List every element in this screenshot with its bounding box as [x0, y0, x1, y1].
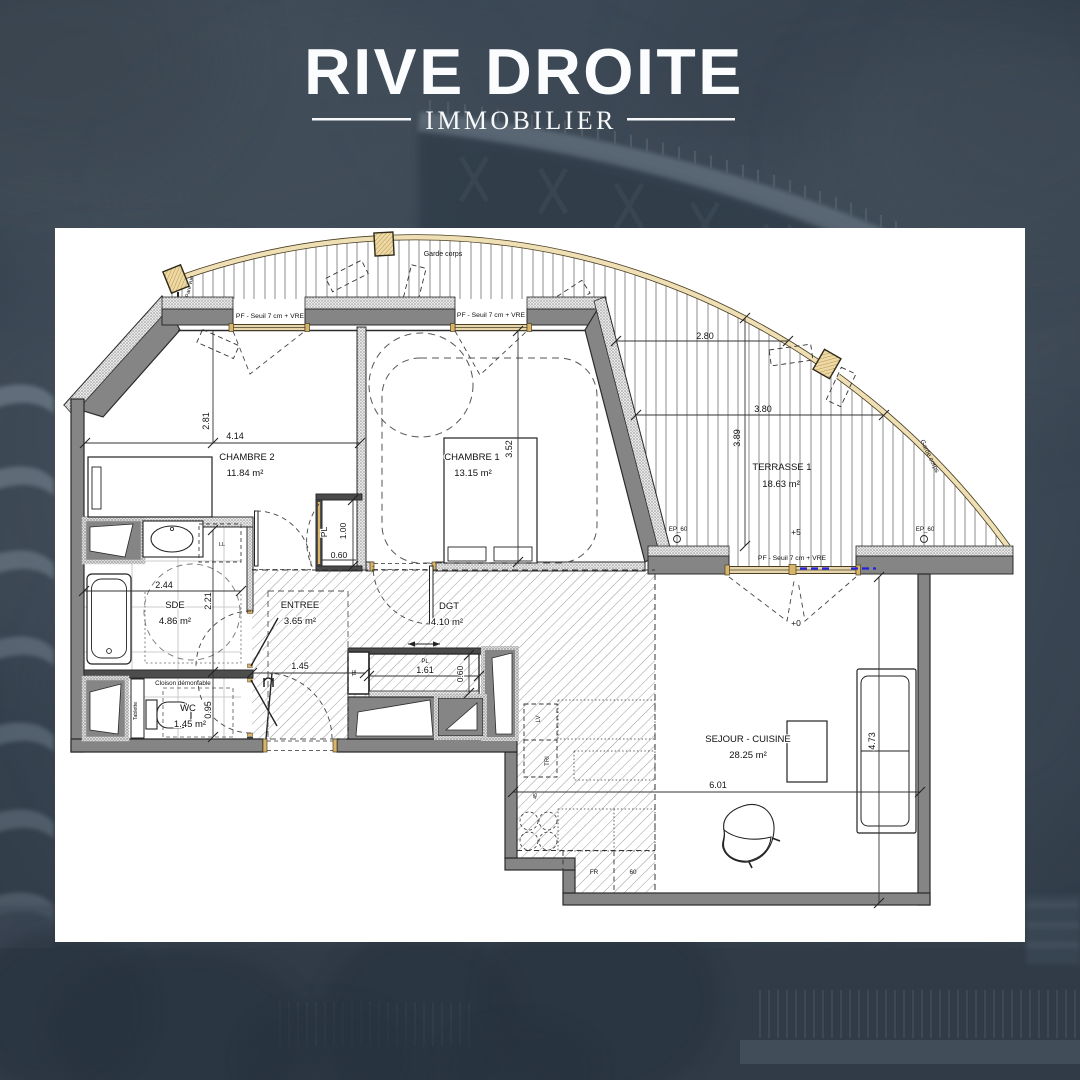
- svg-text:Cloison démontable: Cloison démontable: [155, 680, 211, 687]
- svg-text:TE: TE: [352, 669, 358, 676]
- svg-text:0.60: 0.60: [455, 665, 465, 682]
- svg-text:1.45 m²: 1.45 m²: [174, 719, 206, 730]
- svg-text:PL: PL: [319, 527, 329, 538]
- svg-text:45: 45: [533, 793, 539, 799]
- svg-text:FR: FR: [590, 869, 599, 876]
- svg-text:EP_60: EP_60: [916, 526, 935, 533]
- svg-text:WC: WC: [180, 703, 196, 714]
- svg-text:1.61: 1.61: [416, 665, 434, 675]
- svg-text:4.86 m²: 4.86 m²: [159, 616, 191, 627]
- svg-text:0.95: 0.95: [203, 701, 213, 719]
- svg-text:TRI: TRI: [545, 756, 551, 766]
- svg-text:PF - Seuil 7 cm + VRE: PF - Seuil 7 cm + VRE: [457, 312, 526, 319]
- svg-text:2.81: 2.81: [201, 412, 211, 430]
- svg-text:RIVE DROITE: RIVE DROITE: [304, 36, 744, 108]
- svg-text:LL: LL: [219, 542, 225, 548]
- svg-text:18.63 m²: 18.63 m²: [762, 479, 800, 490]
- svg-text:2.44: 2.44: [155, 580, 173, 590]
- svg-text:3.89: 3.89: [732, 429, 742, 447]
- svg-text:3.65 m²: 3.65 m²: [284, 616, 316, 627]
- svg-text:4.73: 4.73: [867, 732, 877, 750]
- svg-text:SDE: SDE: [165, 600, 185, 611]
- svg-text:SEJOUR - CUISINE: SEJOUR - CUISINE: [705, 734, 791, 745]
- svg-text:+0: +0: [791, 618, 801, 628]
- svg-text:1.00: 1.00: [338, 522, 348, 539]
- svg-text:+5: +5: [791, 527, 801, 537]
- svg-text:3.80: 3.80: [754, 404, 772, 414]
- svg-text:13.15 m²: 13.15 m²: [454, 468, 492, 479]
- svg-text:TERRASSE 1: TERRASSE 1: [752, 462, 811, 473]
- svg-text:EP_60: EP_60: [669, 526, 688, 533]
- svg-text:PF - Seuil 7 cm + VRE: PF - Seuil 7 cm + VRE: [236, 313, 305, 320]
- svg-text:Garde corps: Garde corps: [424, 251, 463, 258]
- svg-text:LV: LV: [536, 716, 542, 723]
- svg-text:3.52: 3.52: [504, 440, 514, 458]
- svg-text:11.84 m²: 11.84 m²: [227, 468, 264, 479]
- svg-text:4.14: 4.14: [226, 431, 244, 441]
- svg-text:DGT: DGT: [439, 601, 459, 612]
- svg-text:PF - Seuil 7 cm + VRE: PF - Seuil 7 cm + VRE: [758, 555, 827, 562]
- svg-text:2.21: 2.21: [203, 592, 213, 610]
- svg-text:0.60: 0.60: [331, 550, 348, 560]
- svg-text:2.80: 2.80: [696, 331, 714, 341]
- svg-text:CHAMBRE 2: CHAMBRE 2: [219, 452, 274, 463]
- svg-text:28.25 m²: 28.25 m²: [729, 750, 767, 761]
- svg-text:PL: PL: [421, 659, 429, 665]
- svg-text:CHAMBRE 1: CHAMBRE 1: [444, 452, 499, 463]
- svg-text:IMMOBILIER: IMMOBILIER: [425, 106, 616, 135]
- svg-text:4.10 m²: 4.10 m²: [431, 617, 463, 628]
- svg-text:60: 60: [629, 869, 637, 876]
- svg-text:Tablette: Tablette: [133, 702, 139, 720]
- svg-text:ENTREE: ENTREE: [281, 600, 320, 611]
- svg-text:6.01: 6.01: [709, 780, 727, 790]
- svg-text:1.45: 1.45: [291, 661, 309, 671]
